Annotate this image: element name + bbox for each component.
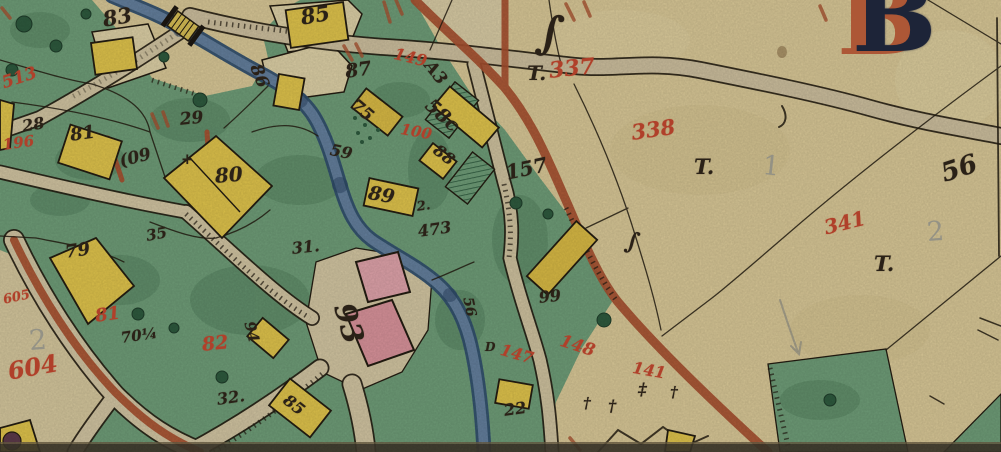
- paper-grain: [0, 0, 1001, 452]
- cadastral-map-canvas[interactable]: 838586877558c8889592928(098081+793531.2.…: [0, 0, 1001, 452]
- map-artwork: [0, 0, 1001, 452]
